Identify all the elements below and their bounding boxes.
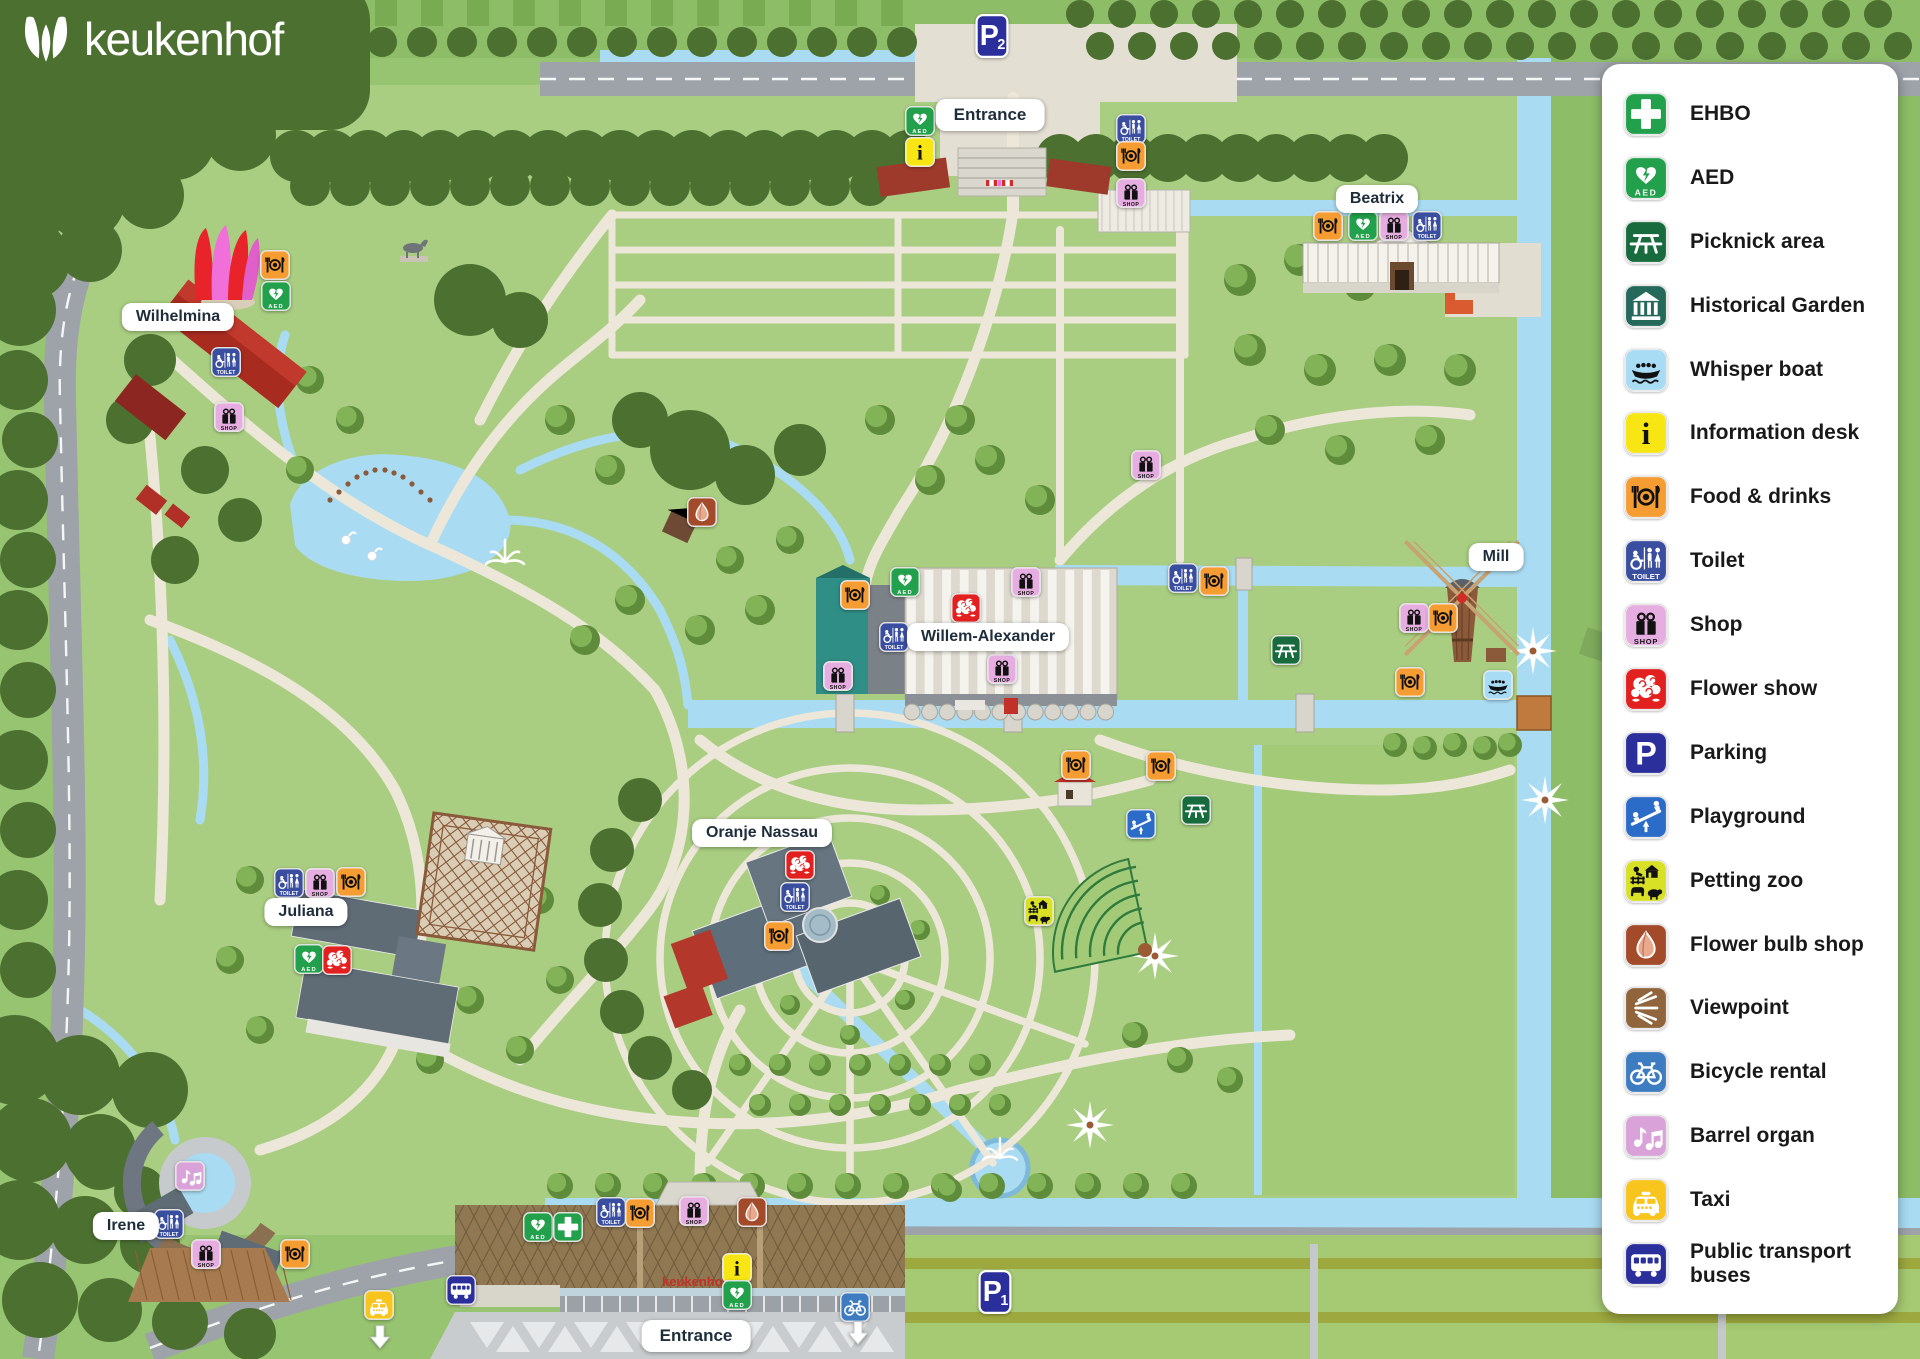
aed-icon: AED <box>1624 156 1668 200</box>
east-field <box>1262 745 1514 1195</box>
svg-text:TOILET: TOILET <box>1632 572 1660 581</box>
parking-icon: P <box>1624 731 1668 775</box>
legend-item-info: iInformation desk <box>1602 401 1898 465</box>
flowerbulb-icon <box>1624 923 1668 967</box>
legend-item-label: Toilet <box>1690 549 1744 573</box>
legend-item-shop: SHOPShop <box>1602 593 1898 657</box>
legend-item-food: Food & drinks <box>1602 465 1898 529</box>
legend-item-label: Information desk <box>1690 421 1859 445</box>
legend-item-label: Barrel organ <box>1690 1124 1815 1148</box>
picnic-icon <box>1624 220 1668 264</box>
playground-icon <box>1624 795 1668 839</box>
info-icon: i <box>1624 411 1668 455</box>
pettingzoo-icon <box>1624 859 1668 903</box>
food-icon <box>1624 475 1668 519</box>
legend-item-label: EHBO <box>1690 102 1751 126</box>
legend-item-label: Historical Garden <box>1690 294 1865 318</box>
barrelorgan-icon <box>1624 1114 1668 1158</box>
legend-item-viewpoint: Viewpoint <box>1602 976 1898 1040</box>
historical-icon <box>1624 284 1668 328</box>
legend-item-bus: Public transport buses <box>1602 1232 1898 1296</box>
legend-item-label: Whisper boat <box>1690 358 1823 382</box>
bicycle-icon <box>1624 1050 1668 1094</box>
legend-item-flowershow: Flower show <box>1602 657 1898 721</box>
legend-item-label: Bicycle rental <box>1690 1060 1827 1084</box>
keukenhof-park-map: keukenhof <box>0 0 1920 1359</box>
ehbo-icon <box>1624 92 1668 136</box>
legend-item-barrelorgan: Barrel organ <box>1602 1104 1898 1168</box>
toilet-icon: TOILET <box>1624 539 1668 583</box>
legend-panel: EHBOAEDAEDPicknick areaHistorical Garden… <box>1602 64 1898 1314</box>
legend-item-playground: Playground <box>1602 785 1898 849</box>
svg-text:P: P <box>1635 735 1657 771</box>
legend-item-label: Picknick area <box>1690 230 1824 254</box>
legend-item-aed: AEDAED <box>1602 146 1898 210</box>
keukenhof-logo: keukenhof <box>20 12 283 66</box>
legend-item-historical: Historical Garden <box>1602 274 1898 338</box>
taxi-icon <box>1624 1178 1668 1222</box>
legend-item-label: Flower bulb shop <box>1690 933 1864 957</box>
entrance-building-logo-text: keukenhof <box>662 1274 728 1289</box>
legend-item-toilet: TOILETToilet <box>1602 529 1898 593</box>
legend-item-label: Viewpoint <box>1690 996 1789 1020</box>
legend-item-flowerbulb: Flower bulb shop <box>1602 913 1898 977</box>
legend-item-label: Petting zoo <box>1690 869 1803 893</box>
legend-item-ehbo: EHBO <box>1602 82 1898 146</box>
legend-item-parking: PParking <box>1602 721 1898 785</box>
flowershow-icon <box>1624 667 1668 711</box>
legend-item-label: Shop <box>1690 613 1743 637</box>
whisperboat-icon <box>1624 348 1668 392</box>
legend-item-label: Food & drinks <box>1690 485 1831 509</box>
legend-item-label: Flower show <box>1690 677 1817 701</box>
bus-icon <box>1624 1242 1668 1286</box>
legend-item-label: Playground <box>1690 805 1806 829</box>
svg-text:AED: AED <box>1635 187 1658 197</box>
legend-item-label: Parking <box>1690 741 1767 765</box>
tulip-logo-icon <box>20 14 72 64</box>
svg-text:i: i <box>1642 416 1651 451</box>
legend-item-pettingzoo: Petting zoo <box>1602 849 1898 913</box>
legend-item-bicycle: Bicycle rental <box>1602 1040 1898 1104</box>
legend-item-taxi: Taxi <box>1602 1168 1898 1232</box>
legend-item-label: Public transport buses <box>1690 1240 1898 1288</box>
shop-icon: SHOP <box>1624 603 1668 647</box>
legend-item-picnic: Picknick area <box>1602 210 1898 274</box>
legend-item-label: Taxi <box>1690 1188 1730 1212</box>
svg-text:SHOP: SHOP <box>1634 637 1658 646</box>
building-entrance-south: keukenhof <box>420 1182 960 1359</box>
logo-wordmark: keukenhof <box>84 12 283 66</box>
viewpoint-icon <box>1624 986 1668 1030</box>
legend-item-whisperboat: Whisper boat <box>1602 338 1898 402</box>
legend-item-label: AED <box>1690 166 1734 190</box>
